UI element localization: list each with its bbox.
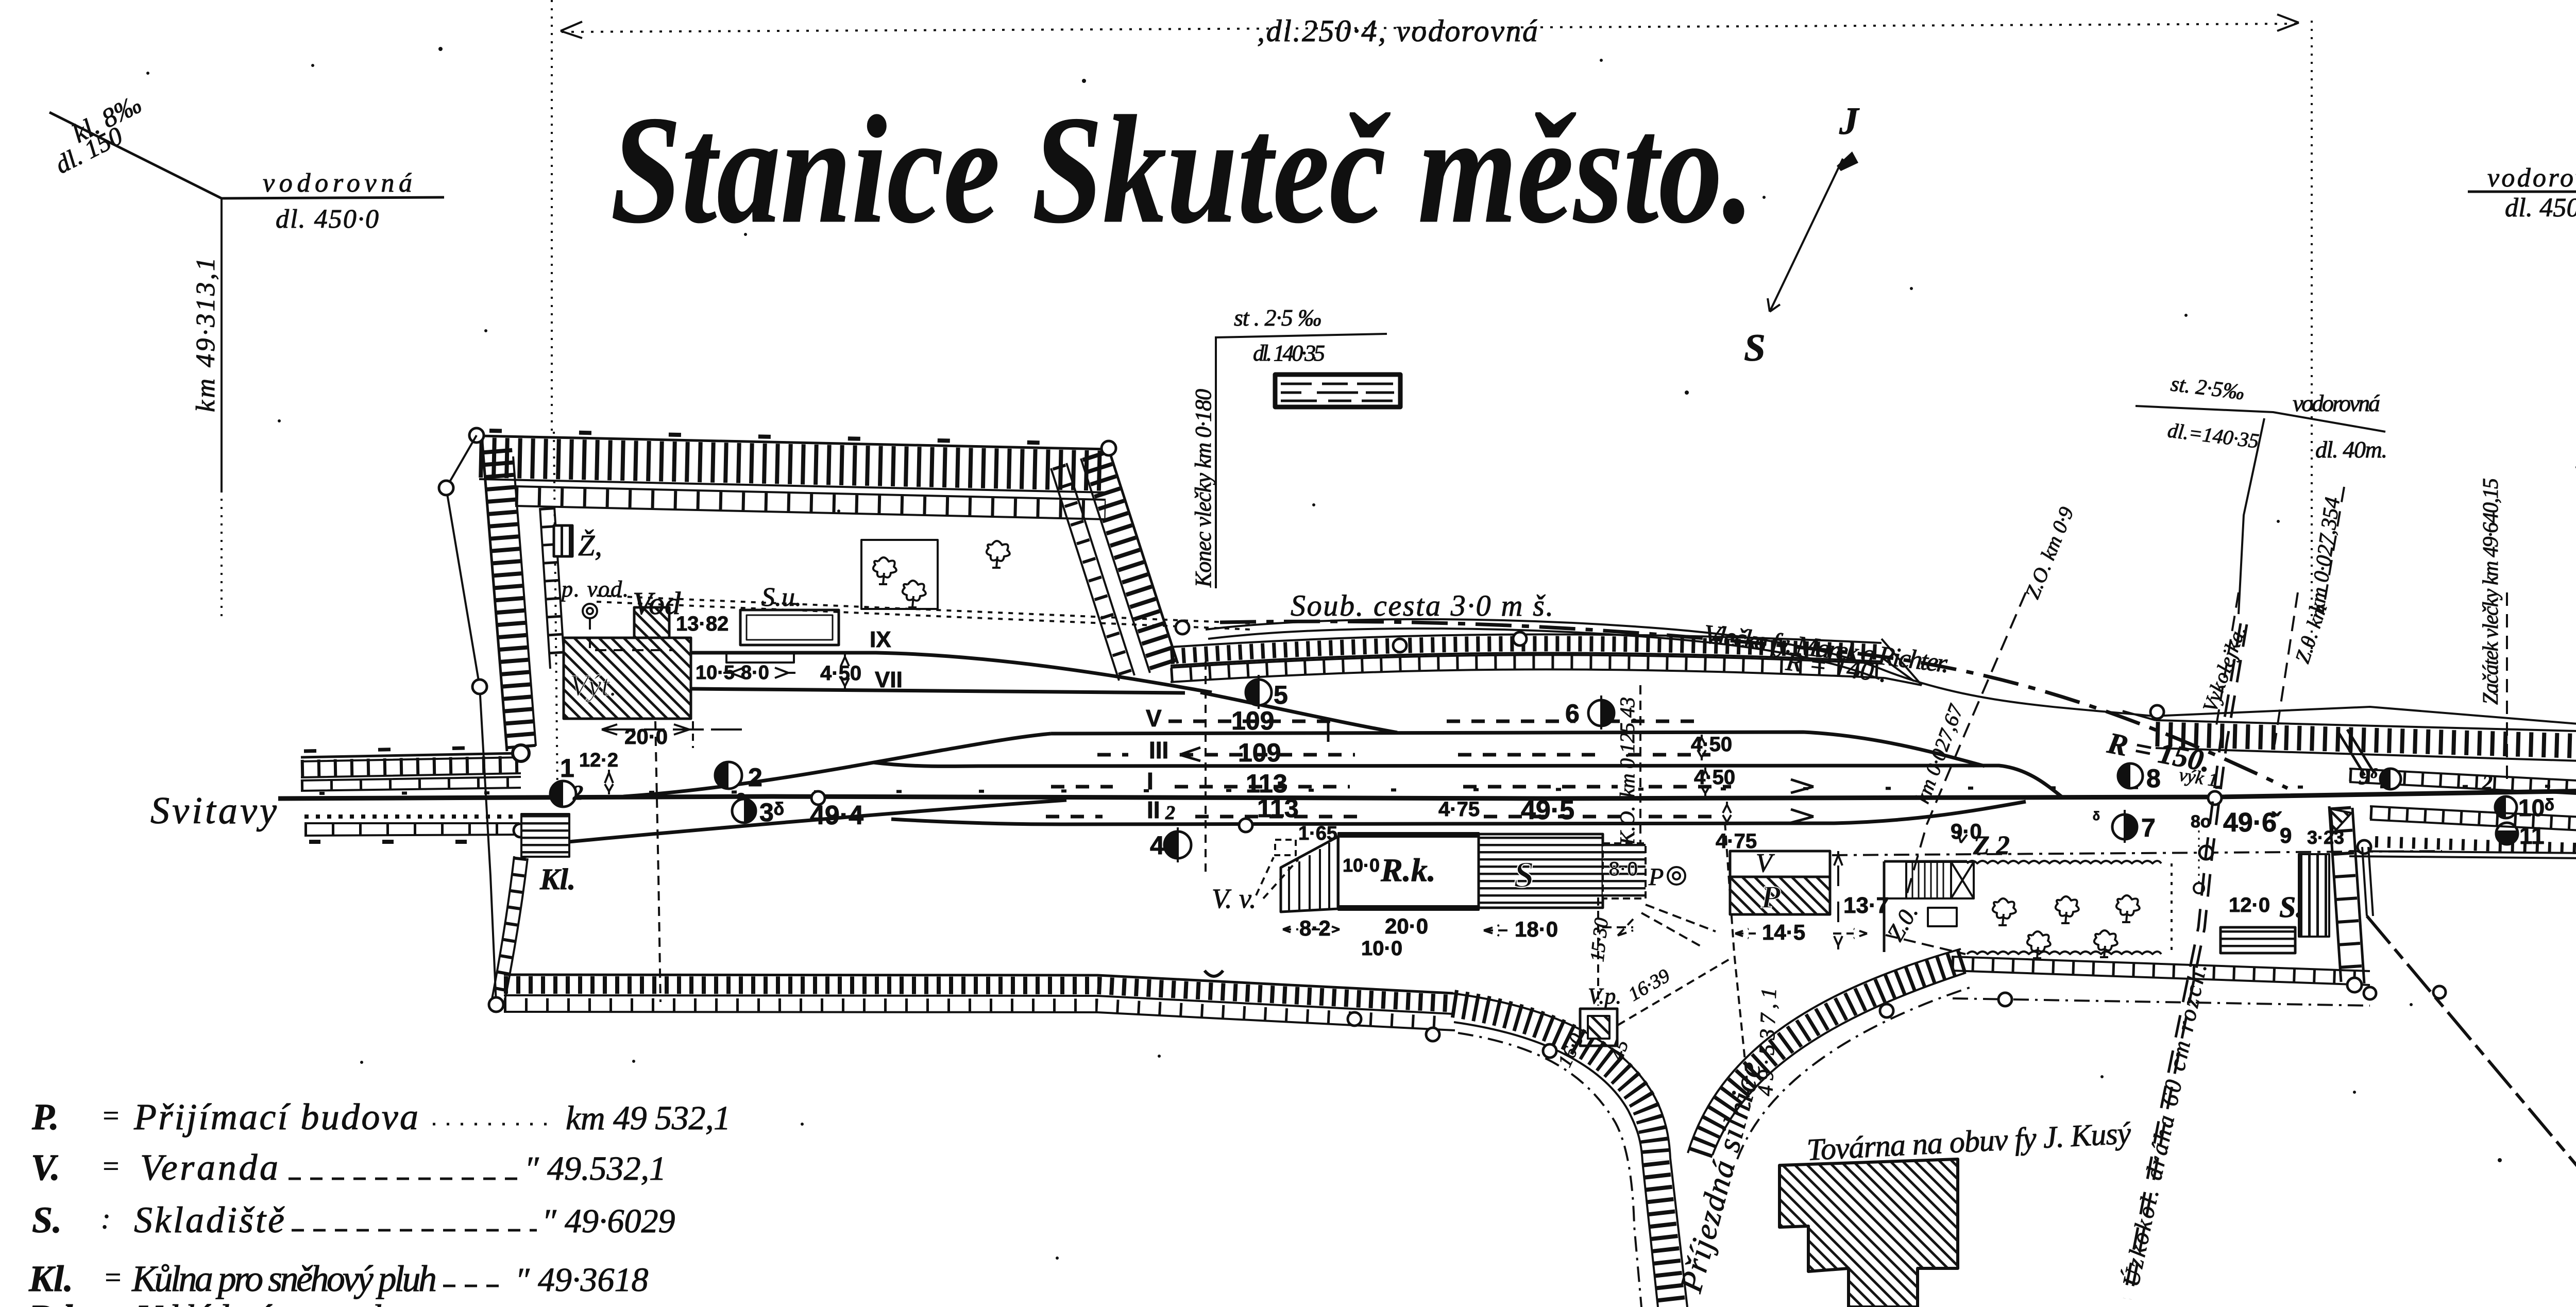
svg-text:R.k.: R.k. (28, 1297, 91, 1307)
svg-text:I: I (1147, 768, 1154, 794)
svg-text:=: = (101, 1150, 121, 1182)
svg-text:18·0: 18·0 (1515, 917, 1558, 941)
svg-text:6: 6 (1565, 699, 1580, 728)
svg-text:2: 2 (2482, 771, 2493, 794)
svg-text:st . 2·5 ‰: st . 2·5 ‰ (1234, 304, 1321, 331)
svg-text:Vod: Vod (633, 586, 681, 621)
svg-text:20·0: 20·0 (1385, 914, 1428, 938)
svg-text:3·23: 3·23 (2307, 827, 2344, 848)
svg-text:Kl.: Kl. (28, 1258, 73, 1299)
svg-text:=: = (101, 1100, 121, 1132)
svg-text:13·7: 13·7 (1843, 893, 1889, 918)
svg-text:4·50: 4·50 (1694, 766, 1735, 789)
svg-text:14·5: 14·5 (1762, 920, 1805, 944)
svg-text:IX: IX (870, 627, 891, 652)
svg-text:2: 2 (1165, 802, 1175, 824)
svg-text:V: V (1146, 705, 1162, 732)
svg-text:109: 109 (1231, 706, 1274, 735)
svg-text:9: 9 (2280, 823, 2292, 847)
svg-text:113: 113 (1257, 794, 1299, 823)
svg-text:20·0: 20·0 (624, 724, 668, 749)
svg-text:″ 49·6029: ″ 49·6029 (542, 1202, 675, 1240)
svg-text:II: II (1147, 796, 1160, 823)
svg-text:4·50: 4·50 (1691, 733, 1732, 756)
svg-text:Ž,: Ž, (578, 529, 602, 562)
svg-text:Vykládací rampa kus.: Vykládací rampa kus. (137, 1297, 427, 1307)
svg-text:8: 8 (2146, 764, 2161, 793)
svg-text:P: P (1648, 863, 1664, 891)
svg-text:V.: V. (31, 1147, 60, 1188)
svg-text:Výt.: Výt. (570, 669, 617, 702)
svg-text:P: P (1760, 880, 1781, 915)
svg-text:2: 2 (572, 781, 583, 804)
svg-text:Kl.: Kl. (539, 862, 575, 896)
svg-text:8o: 8o (2191, 812, 2211, 831)
svg-text:8·0: 8·0 (1608, 858, 1638, 880)
svg-text:,dl.250·4, vodorovná: ,dl.250·4, vodorovná (1257, 14, 1538, 48)
svg-text:S.: S. (32, 1199, 62, 1241)
svg-text:″ 49·3618: ″ 49·3618 (515, 1261, 649, 1299)
svg-text:Začátek vlečky km 49·640,15: Začátek vlečky km 49·640,15 (2479, 478, 2503, 705)
svg-text:dl. 40m.: dl. 40m. (2315, 436, 2387, 463)
svg-text:10·0: 10·0 (1361, 937, 1402, 960)
svg-text:49·6̌: 49·6̌ (2223, 808, 2282, 838)
svg-text:p. vod.: p. vod. (560, 576, 629, 602)
svg-text:dl. 140·35: dl. 140·35 (1253, 341, 1325, 366)
svg-text:S: S (1744, 327, 1766, 369)
svg-text:12·2: 12·2 (579, 750, 618, 771)
svg-text:Stanice Skuteč město.: Stanice Skuteč město. (611, 84, 1754, 255)
svg-text:ᵟ: ᵟ (2093, 809, 2100, 828)
svg-text:15·30: 15·30 (1586, 917, 1613, 963)
svg-text:8·0: 8·0 (741, 662, 769, 684)
svg-text:″ 49·4839: ″ 49·4839 (515, 1300, 649, 1307)
svg-text:Kůlna pro sněhový pluh: Kůlna pro sněhový pluh (131, 1258, 437, 1299)
svg-text:S: S (1514, 854, 1534, 895)
svg-text:km 49 532,1: km 49 532,1 (566, 1099, 731, 1137)
svg-text:49·5: 49·5 (1521, 795, 1574, 825)
svg-text:13·82: 13·82 (676, 613, 728, 635)
svg-text:dl. 450·0: dl. 450·0 (276, 205, 379, 234)
svg-text:4·75: 4·75 (1438, 798, 1480, 821)
svg-text:K.O.: K.O. (1616, 806, 1639, 845)
svg-text:Skladiště: Skladiště (134, 1199, 285, 1241)
svg-text:109: 109 (1238, 738, 1281, 767)
svg-text:dl. 450·0: dl. 450·0 (2505, 193, 2576, 223)
svg-text:vodorovná: vodorovná (2293, 390, 2380, 416)
svg-text:3ᵟ: 3ᵟ (759, 798, 784, 827)
svg-text:V: V (1756, 848, 1775, 878)
svg-text:1: 1 (560, 754, 574, 783)
svg-text:7: 7 (2141, 813, 2156, 842)
svg-text:S.u.: S.u. (761, 583, 802, 612)
svg-text:=: = (103, 1262, 123, 1294)
svg-text:V. v.: V. v. (1212, 883, 1256, 914)
svg-text:V.p.: V.p. (1588, 983, 1621, 1009)
svg-text:km 0·125,43: km 0·125,43 (1616, 697, 1639, 797)
svg-text::: : (101, 1203, 111, 1235)
svg-text:9ᵟ: 9ᵟ (2359, 764, 2378, 789)
svg-text:4: 4 (1150, 831, 1164, 860)
svg-text:III: III (1149, 737, 1168, 763)
svg-text:10ᵟ: 10ᵟ (2518, 794, 2554, 821)
svg-text:Soub. cesta 3·0 m š.: Soub. cesta 3·0 m š. (1291, 589, 1553, 622)
svg-text:5: 5 (1274, 681, 1288, 709)
svg-text:R.k.: R.k. (1380, 852, 1436, 888)
svg-text:2: 2 (748, 763, 762, 792)
svg-text:4·75: 4·75 (1716, 830, 1757, 853)
svg-text:″ 49.532,1: ″ 49.532,1 (524, 1150, 666, 1187)
svg-text:P.: P. (31, 1096, 59, 1138)
svg-text:10·0: 10·0 (1343, 855, 1380, 876)
svg-text:12·0: 12·0 (2229, 894, 2270, 916)
svg-text:Konec vlečky km 0·180: Konec vlečky km 0·180 (1191, 389, 1216, 588)
svg-text:Z 2: Z 2 (1973, 831, 2010, 860)
svg-text:VII: VII (875, 667, 903, 692)
svg-text:8·2: 8·2 (1299, 916, 1331, 940)
svg-text:J: J (1839, 100, 1860, 143)
svg-text:vodorovná: vodorovná (263, 168, 412, 198)
